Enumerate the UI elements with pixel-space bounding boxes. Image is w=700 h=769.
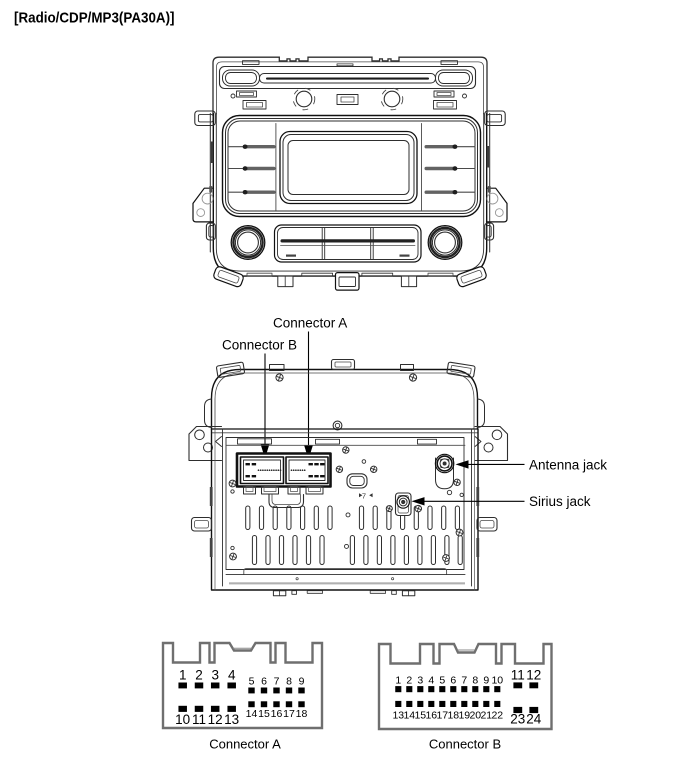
svg-text:16: 16 xyxy=(271,708,283,720)
svg-text:6: 6 xyxy=(261,676,267,688)
svg-text:8: 8 xyxy=(472,675,478,687)
svg-text:15: 15 xyxy=(258,708,270,720)
svg-text:7: 7 xyxy=(461,675,467,687)
svg-text:Connector A: Connector A xyxy=(273,316,347,331)
svg-text:5: 5 xyxy=(249,676,255,688)
svg-text:12: 12 xyxy=(526,668,541,683)
svg-text:17: 17 xyxy=(283,708,295,720)
svg-text:2: 2 xyxy=(195,668,203,683)
svg-text:Antenna jack: Antenna jack xyxy=(529,457,607,472)
svg-text:24: 24 xyxy=(526,712,542,727)
svg-text:4: 4 xyxy=(428,675,434,687)
svg-text:3: 3 xyxy=(417,675,423,687)
svg-text:1: 1 xyxy=(395,675,401,687)
svg-text:7: 7 xyxy=(274,676,280,688)
svg-text:4: 4 xyxy=(228,668,236,683)
svg-text:6: 6 xyxy=(450,675,456,687)
svg-text:22: 22 xyxy=(491,710,503,722)
svg-text:11: 11 xyxy=(511,668,525,683)
svg-text:Connector B: Connector B xyxy=(222,338,297,353)
svg-text:9: 9 xyxy=(483,675,489,687)
svg-text:Connector B: Connector B xyxy=(429,737,501,752)
svg-text:14: 14 xyxy=(246,708,258,720)
svg-text:Connector A: Connector A xyxy=(209,737,281,752)
svg-text:11: 11 xyxy=(192,712,206,727)
svg-text:Sirius jack: Sirius jack xyxy=(529,494,591,509)
svg-text:1: 1 xyxy=(179,668,187,683)
svg-text:10: 10 xyxy=(491,675,503,687)
svg-text:5: 5 xyxy=(439,675,445,687)
svg-text:3: 3 xyxy=(211,668,219,683)
svg-text:12: 12 xyxy=(208,712,223,727)
svg-text:9: 9 xyxy=(299,676,305,688)
svg-text:23: 23 xyxy=(510,712,525,727)
svg-text:8: 8 xyxy=(286,676,292,688)
svg-text:[Radio/CDP/MP3(PA30A)]: [Radio/CDP/MP3(PA30A)] xyxy=(14,9,175,26)
svg-text:7: 7 xyxy=(362,491,366,500)
svg-text:10: 10 xyxy=(175,712,190,727)
svg-text:13: 13 xyxy=(224,712,239,727)
svg-text:2: 2 xyxy=(406,675,412,687)
svg-text:18: 18 xyxy=(296,708,308,720)
